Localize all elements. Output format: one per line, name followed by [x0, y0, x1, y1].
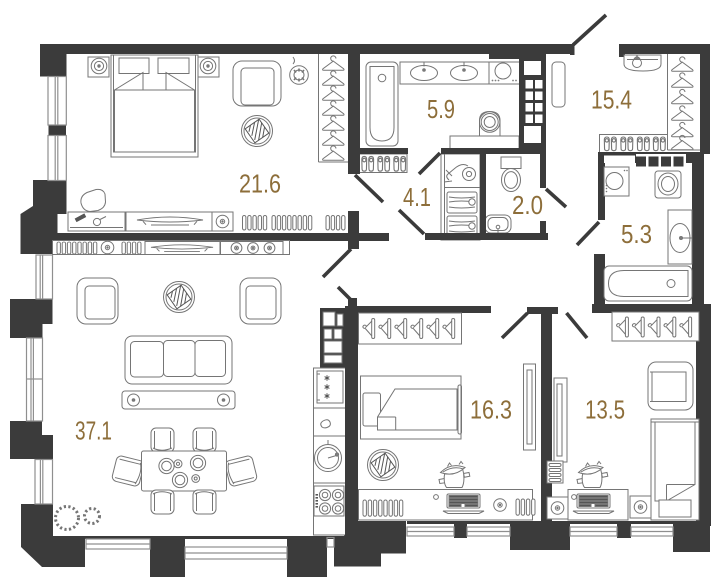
svg-text:16.3: 16.3 — [470, 395, 512, 425]
svg-text:37.1: 37.1 — [75, 416, 112, 446]
svg-text:5.3: 5.3 — [621, 219, 652, 249]
svg-text:2.0: 2.0 — [512, 190, 543, 220]
svg-text:21.6: 21.6 — [239, 169, 281, 199]
svg-text:5.9: 5.9 — [427, 94, 455, 124]
svg-text:4.1: 4.1 — [403, 182, 431, 212]
svg-text:13.5: 13.5 — [585, 395, 625, 425]
svg-text:15.4: 15.4 — [591, 85, 632, 115]
